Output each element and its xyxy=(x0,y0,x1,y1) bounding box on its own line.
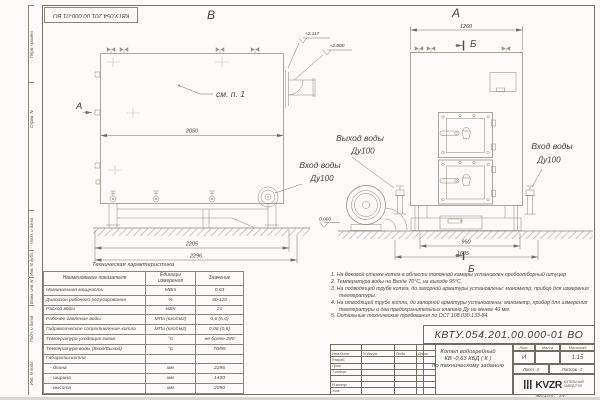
tech-col-header: Единицы измерения xyxy=(146,272,196,286)
view-direction-label: А xyxy=(75,101,82,112)
table-row: Температура уходящих газов°Сне более 280 xyxy=(44,334,244,344)
tech-col-header: Наименование показателя xyxy=(44,272,146,286)
inlet-flange-valve xyxy=(524,186,536,214)
notes-list: 1. На боковой стенке котла в области топ… xyxy=(331,272,596,320)
sheets-total-cell: Листов 2 xyxy=(549,364,595,374)
sheet-label: Лист xyxy=(523,367,534,372)
note-item: 2. Температура воды на Входе 70°С, на вы… xyxy=(331,279,596,286)
scale-value: 1:15 xyxy=(560,351,595,364)
outlet-flange-valve xyxy=(394,186,406,214)
table-row: - длинамм2296 xyxy=(44,364,244,374)
manufacturer-logo-cell: KVZR КОТЕЛЬНЫЙ ЗАВОД РЭП xyxy=(513,374,595,395)
dim-1260: 1260 xyxy=(460,24,473,30)
inlet-left-leader xyxy=(275,184,302,193)
product-name-line: Котел водогрейный xyxy=(440,349,495,356)
titleblock-doc-number: КВТУ.054.201.00.000-01 ВО xyxy=(423,325,595,344)
lit-value: И xyxy=(513,351,535,364)
note-item: 4. На отводящей трубе котла, до запорной… xyxy=(331,300,596,314)
view-b-label: В xyxy=(207,8,215,22)
boiler-door-upper xyxy=(439,113,496,158)
kvzr-logo-subtitle: КОТЕЛЬНЫЙ ЗАВОД РЭП xyxy=(564,381,584,388)
product-name-line: КВ -0,63 КБД ( К ) xyxy=(445,356,492,363)
mass-header: Масса xyxy=(535,344,560,351)
fan-blower xyxy=(347,186,408,232)
table-row: - ширинамм1430 xyxy=(44,374,244,384)
inlet-left-annotation: Вход воды xyxy=(299,160,341,170)
kvzr-logo-text: KVZR xyxy=(535,379,562,391)
boiler-door-lower xyxy=(439,160,496,204)
elevation-2000: +2.000 xyxy=(330,43,345,49)
table-row: Габариты котла xyxy=(44,354,244,364)
titleblock-name-cell: Котел водогрейный КВ -0,63 КБД ( К ) по … xyxy=(423,344,513,395)
logo-subtitle-line: ЗАВОД РЭП xyxy=(564,385,584,389)
section-label-top: Б xyxy=(470,39,477,50)
table-row: Номинальная мощностьМВт0,63 xyxy=(44,286,244,296)
dim-2205: 2205 xyxy=(185,242,199,248)
sheet-number: 1 xyxy=(537,367,539,372)
sheets-label: Листов xyxy=(562,367,577,372)
outlet-annotation: Выход воды xyxy=(336,133,385,143)
mass-value xyxy=(535,351,560,364)
dim-960: 960 xyxy=(461,240,471,246)
note-item: 5. Остальные технические требования по О… xyxy=(331,313,596,320)
inlet-right-leader xyxy=(532,169,542,187)
dim-1605: 1605 xyxy=(457,251,470,257)
revision-table: Изм.Лист N докум. Подп. Дата Разраб. Про… xyxy=(330,344,436,395)
view-a-label: А xyxy=(451,6,460,20)
table-row: Гидравлическое сопротивление котлаМПа (к… xyxy=(44,325,244,335)
inlet-left-annotation-dn: Ду100 xyxy=(309,174,334,183)
see-note-callout: см. п. 1 xyxy=(216,89,245,99)
inlet-flange-circle xyxy=(258,187,278,207)
table-row: Рабочее давление водыМПа (кгс/см2)0,6 (6… xyxy=(44,315,244,325)
outlet-leader xyxy=(352,157,394,188)
lit-header: Лит. xyxy=(513,344,535,351)
inlet-right-annotation: Вход воды xyxy=(531,141,573,151)
rev-row-label: Утв. xyxy=(331,388,362,394)
product-name-line: по техническому заданию xyxy=(432,363,504,370)
view-b-side-view xyxy=(93,38,352,263)
table-row: Расход водым3/ч21 xyxy=(44,305,244,315)
table-row: Диапазон рабочего регулирования%40-110 xyxy=(44,295,244,305)
table-row: Температура воды (Вход/Выход)°С70/95 xyxy=(44,344,244,354)
drawing-sheet: Перв. примен. Справ. N Подп. и дата Инв.… xyxy=(0,0,600,400)
note-item: 3. На подводящей трубе котла, до запорно… xyxy=(331,286,596,300)
inlet-right-annotation-dn: Ду100 xyxy=(536,156,561,165)
tech-table-title: Техническая характеристика xyxy=(92,262,174,268)
dim-2050: 2050 xyxy=(185,129,199,135)
sheets-total: 2 xyxy=(580,367,582,372)
elevation-2117: +2.117 xyxy=(305,31,320,37)
note-item: 1. На боковой стенке котла в области топ… xyxy=(331,272,596,279)
elevation-0000: 0.000 xyxy=(319,217,331,223)
dim-2296: 2296 xyxy=(189,254,203,260)
tech-table: Наименование показателя Единицы измерени… xyxy=(43,271,244,394)
kvzr-logo-icon xyxy=(524,380,533,389)
table-row: - высотамм2050 xyxy=(44,383,244,393)
sheet-number-cell: Лист 1 xyxy=(513,364,549,374)
outlet-annotation-dn: Ду100 xyxy=(350,147,375,156)
tech-col-header: Значение xyxy=(196,272,244,286)
scale-header: Масштаб xyxy=(560,344,595,351)
doc-number-text: КВТУ.054.201.00.000-01 ВО xyxy=(435,329,584,341)
